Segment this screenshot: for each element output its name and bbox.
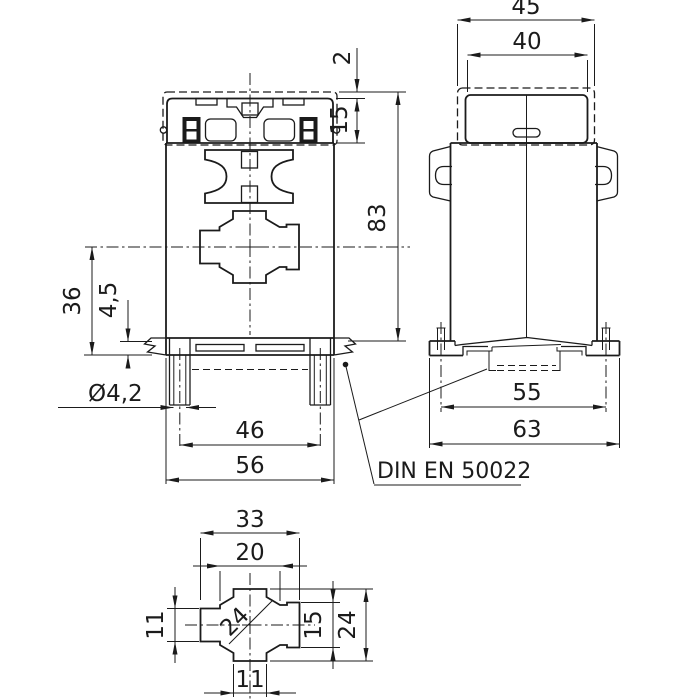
dim-15-right-label: 15 bbox=[301, 610, 327, 639]
dim-83-label: 83 bbox=[365, 203, 391, 232]
front-foot-slot-left bbox=[196, 345, 244, 352]
dim-46: 46 bbox=[180, 418, 320, 445]
dim-24-right-label: 24 bbox=[335, 610, 361, 639]
dim-20: 20 bbox=[193, 540, 307, 601]
side-base-hole-right bbox=[602, 322, 611, 412]
dim-63-label: 63 bbox=[512, 417, 541, 443]
front-foot-slot-right bbox=[256, 345, 304, 352]
dim-dia-4-2: Ø4,2 bbox=[58, 381, 216, 408]
dim-4-5-label: 4,5 bbox=[96, 282, 122, 319]
dim-40-label: 40 bbox=[512, 29, 541, 55]
dim-40: 40 bbox=[468, 29, 588, 92]
dim-dia-4-2-label: Ø4,2 bbox=[88, 381, 143, 407]
side-mount-wing-right bbox=[595, 147, 618, 202]
leader-line-side bbox=[359, 369, 487, 420]
dim-55-label: 55 bbox=[512, 380, 541, 406]
dim-24-diagonal-label: 24 bbox=[216, 603, 255, 642]
front-mount-boss-left bbox=[170, 348, 191, 449]
technical-drawing: 36 4,5 Ø4,2 46 56 bbox=[0, 0, 700, 700]
dim-2-label: 2 bbox=[330, 51, 356, 66]
window-detail-view: 24 33 20 11 bbox=[143, 507, 373, 700]
dim-15-front-label: 15 bbox=[327, 105, 353, 134]
dim-46-label: 46 bbox=[235, 418, 264, 444]
dim-20-label: 20 bbox=[235, 540, 264, 566]
technical-drawing-page: 36 4,5 Ø4,2 46 56 bbox=[0, 0, 700, 700]
dim-55: 55 bbox=[441, 380, 606, 407]
leader-line-front bbox=[346, 365, 375, 485]
front-bobbin bbox=[205, 150, 293, 203]
dim-24-diagonal: 24 bbox=[216, 600, 273, 644]
dim-11-bottom: 11 bbox=[204, 664, 296, 697]
dim-11-left-label: 11 bbox=[143, 610, 169, 639]
front-rail-clip-left bbox=[145, 338, 167, 355]
side-mount-wing-left bbox=[430, 147, 453, 202]
din-standard-label: DIN EN 50022 bbox=[377, 459, 531, 484]
front-center-lines bbox=[85, 73, 410, 335]
dim-45-label: 45 bbox=[511, 0, 540, 20]
side-housing bbox=[451, 143, 598, 341]
dim-36-label: 36 bbox=[60, 286, 86, 315]
side-base-hole-left bbox=[437, 322, 446, 412]
front-terminal-window-left bbox=[206, 119, 237, 141]
dim-11-bottom-label: 11 bbox=[235, 667, 264, 693]
dim-33-label: 33 bbox=[235, 507, 264, 533]
front-mount-boss-right bbox=[310, 348, 331, 449]
dim-56-label: 56 bbox=[235, 453, 264, 479]
front-terminal-window-right bbox=[264, 119, 295, 141]
front-view: 36 4,5 Ø4,2 46 56 bbox=[58, 48, 410, 484]
din-rail-note: DIN EN 50022 bbox=[343, 362, 532, 485]
front-rail-foot bbox=[145, 338, 356, 370]
dim-2: 2 bbox=[330, 48, 406, 99]
